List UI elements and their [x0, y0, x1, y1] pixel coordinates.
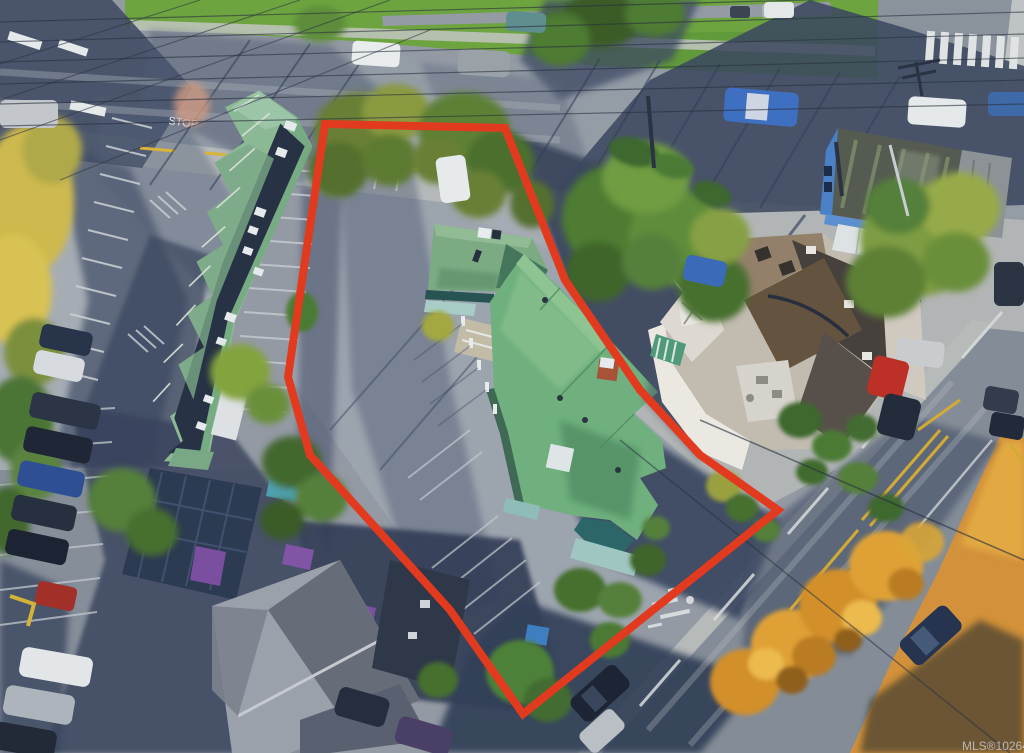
svg-text:MLS®1026444: MLS®1026444	[962, 739, 1024, 753]
